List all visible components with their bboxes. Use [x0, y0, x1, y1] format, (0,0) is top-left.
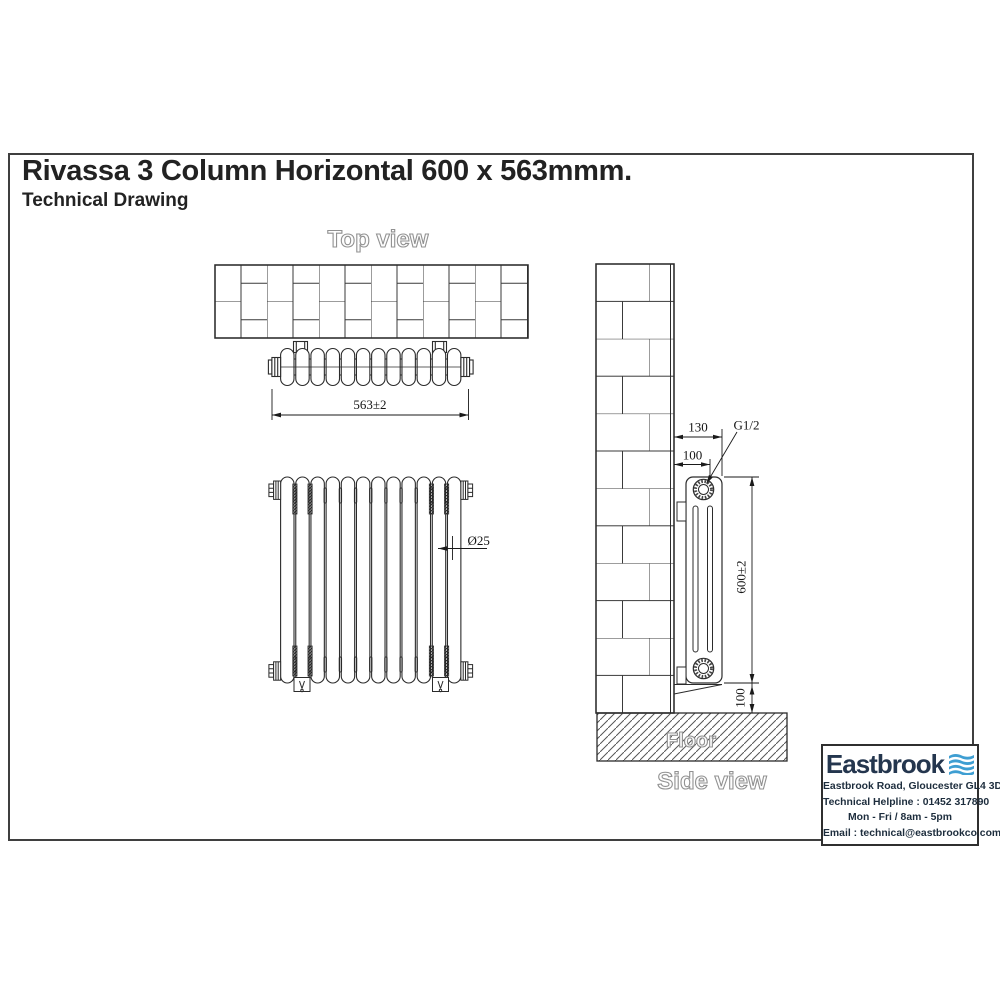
bottom-bushing: [693, 658, 713, 678]
top-bushing: [693, 479, 713, 499]
side-floor-support: [674, 685, 722, 695]
side-view: Floor: [596, 264, 787, 795]
front-view: Ø25: [269, 477, 490, 692]
brand-waves-icon: [949, 753, 974, 775]
column-dim-text: Ø25: [468, 533, 490, 548]
thread-dim-text: G1/2: [734, 418, 760, 433]
brand-hours: Mon - Fri / 8am - 5pm: [823, 810, 977, 826]
side-view-radiator: [674, 477, 722, 694]
brand-helpline: Technical Helpline : 01452 317890: [823, 795, 977, 811]
height-dim-text: 600±2: [734, 560, 749, 593]
brand-box: Eastbrook Eastbrook Road, Gloucester GL4…: [821, 744, 979, 846]
radiator-drawing: Top view: [0, 0, 1000, 1000]
top-view-width-dimension: 563±2: [272, 389, 469, 420]
side-wall-bracket-top: [677, 502, 686, 521]
side-wall-bracket-bottom: [677, 667, 686, 684]
brand-email: Email : technical@eastbrookco.com: [823, 826, 977, 842]
top-width-dim-text: 563±2: [353, 397, 386, 412]
brand-address: Eastbrook Road, Gloucester GL4 3DB: [823, 779, 977, 795]
top-view-wall: [215, 265, 528, 338]
depth-dim-text: 130: [688, 420, 708, 435]
floor-label: Floor: [666, 730, 716, 752]
top-view-radiator: [268, 349, 473, 386]
side-view-label: Side view: [657, 768, 767, 795]
brand-logo: Eastbrook: [823, 749, 977, 779]
top-view: Top view: [215, 226, 528, 420]
pipe-dim-text: 100: [683, 448, 703, 463]
top-view-label: Top view: [328, 226, 429, 253]
side-view-wall: [596, 264, 674, 713]
brand-logo-text: Eastbrook: [826, 749, 944, 780]
floor-clearance-dim-text: 100: [733, 688, 748, 708]
side-view-floor: Floor: [597, 713, 787, 761]
technical-drawing-page: Rivassa 3 Column Horizontal 600 x 563mmm…: [0, 0, 1000, 1000]
